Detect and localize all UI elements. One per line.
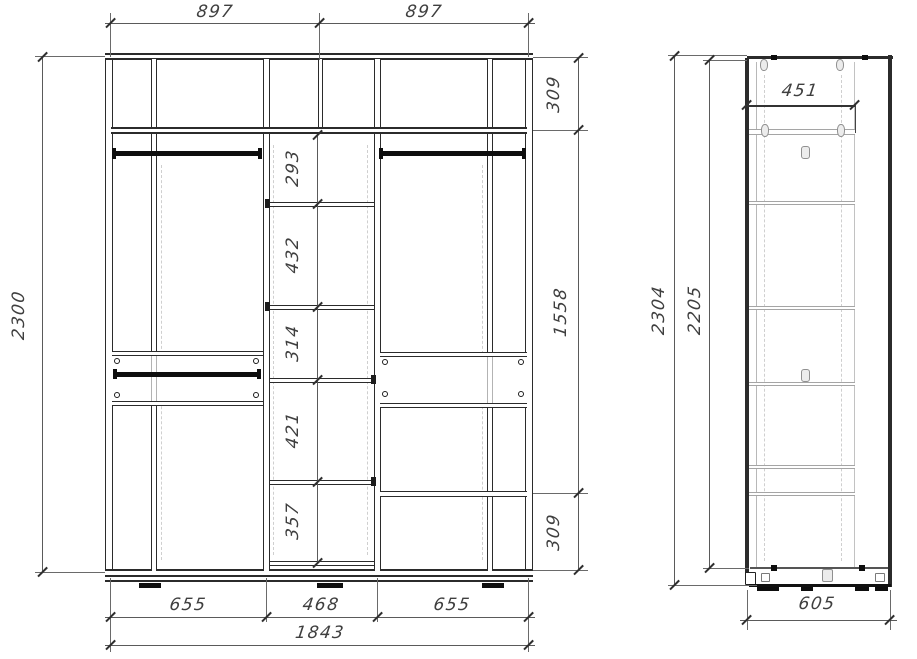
cam-lock-fitting bbox=[761, 124, 769, 137]
corner-fitting bbox=[518, 359, 524, 365]
dimension-line bbox=[747, 105, 856, 107]
middle-shelf bbox=[270, 480, 374, 485]
cam-lock-fitting bbox=[760, 59, 768, 71]
rod-bracket bbox=[522, 148, 526, 159]
side-foot bbox=[757, 587, 779, 591]
technical-drawing-canvas: 897 897 2300 309 1558 309 293 432 314 42… bbox=[0, 0, 917, 659]
side-shelf bbox=[749, 382, 855, 386]
front-plinth-edge bbox=[105, 580, 533, 582]
extension-line bbox=[533, 130, 588, 131]
rod-bracket bbox=[112, 148, 116, 159]
middle-shelf bbox=[270, 561, 374, 566]
hanging-rod-left bbox=[114, 151, 262, 156]
left-band-bottom-shelf bbox=[112, 401, 263, 406]
rod-bracket bbox=[257, 369, 261, 379]
bottom-corner-fitting bbox=[875, 573, 885, 582]
corner-fitting bbox=[382, 391, 388, 397]
cam-lock-fitting bbox=[836, 59, 844, 71]
right-band-fill bbox=[380, 357, 527, 403]
front-foot bbox=[482, 583, 504, 588]
dimension-line bbox=[317, 135, 318, 563]
dim-side-depth: 605 bbox=[786, 594, 849, 614]
dim-front-door-width-left: 897 bbox=[184, 2, 247, 22]
shelf-support bbox=[265, 302, 270, 311]
extension-line bbox=[35, 572, 105, 573]
side-shelf bbox=[749, 465, 855, 469]
extension-line bbox=[855, 105, 856, 133]
corner-fitting bbox=[253, 392, 259, 398]
bottom-fitting bbox=[771, 565, 777, 571]
corner-fitting bbox=[253, 358, 259, 364]
side-shelf bbox=[749, 201, 855, 205]
dimension-line bbox=[740, 620, 897, 621]
right-band-bottom-shelf bbox=[380, 403, 527, 408]
rod-cross-section bbox=[801, 146, 810, 159]
divider-behind-band bbox=[487, 357, 493, 403]
dim-section-width-center: 468 bbox=[290, 595, 353, 615]
dim-side-inner-depth: 451 bbox=[769, 81, 832, 101]
shelf-pin-holes bbox=[764, 75, 765, 561]
rod-bracket bbox=[379, 148, 383, 159]
left-band-fill bbox=[112, 356, 263, 401]
front-divider-left-middle bbox=[263, 59, 270, 571]
hanging-rod-right bbox=[381, 151, 526, 156]
side-shelf bbox=[749, 492, 855, 496]
extension-line bbox=[668, 55, 747, 56]
side-shelf bbox=[749, 306, 855, 310]
bottom-corner-fitting bbox=[761, 573, 770, 582]
side-top-panel bbox=[747, 56, 893, 59]
dim-shelf-gap-2: 432 bbox=[261, 239, 325, 272]
side-top-fitting bbox=[862, 55, 868, 60]
dimension-line bbox=[105, 645, 535, 646]
cam-lock-fitting bbox=[837, 124, 845, 137]
front-bottom-panel bbox=[105, 569, 533, 577]
side-door-front-edge bbox=[745, 58, 749, 573]
extension-line bbox=[890, 590, 891, 630]
front-foot bbox=[317, 583, 343, 588]
side-back-panel bbox=[888, 55, 892, 587]
shelf-support bbox=[371, 477, 376, 486]
corner-fitting bbox=[518, 391, 524, 397]
rod-bracket bbox=[113, 369, 117, 379]
shelf-support bbox=[371, 375, 376, 384]
side-foot bbox=[801, 587, 813, 591]
extension-line bbox=[533, 493, 588, 494]
middle-shelf bbox=[270, 378, 374, 383]
dim-shelf-gap-4: 421 bbox=[261, 414, 325, 447]
front-foot bbox=[139, 583, 161, 588]
shelf-pin-holes bbox=[841, 75, 842, 561]
dim-section-width-right: 655 bbox=[421, 595, 484, 615]
corner-fitting bbox=[114, 392, 120, 398]
dim-section-width-left: 655 bbox=[157, 595, 220, 615]
side-foot bbox=[875, 587, 888, 591]
bottom-fitting-gray bbox=[822, 569, 833, 582]
dim-front-total-height: 2300 bbox=[0, 296, 59, 333]
shelf-support bbox=[265, 199, 270, 208]
corner-fitting bbox=[114, 358, 120, 364]
left-band-top-shelf bbox=[112, 351, 263, 356]
extension-line bbox=[533, 570, 588, 571]
middle-shelf bbox=[270, 305, 374, 310]
corner-fitting bbox=[382, 359, 388, 365]
bottom-fitting bbox=[859, 565, 865, 571]
hanging-rod-left-mid bbox=[115, 372, 261, 377]
front-divider-left-inner bbox=[151, 59, 157, 571]
side-top-fitting bbox=[771, 55, 777, 60]
extension-line bbox=[747, 590, 748, 630]
dim-shelf-gap-3: 314 bbox=[261, 327, 325, 360]
side-foot bbox=[855, 587, 869, 591]
dim-shelf-gap-5: 357 bbox=[261, 505, 325, 538]
right-lower-shelf bbox=[380, 491, 527, 497]
middle-shelf bbox=[270, 202, 374, 207]
front-divider-top-center bbox=[318, 59, 323, 130]
dim-front-total-width: 1843 bbox=[282, 623, 359, 643]
right-band-top-shelf bbox=[380, 352, 527, 357]
divider-behind-band bbox=[151, 356, 157, 401]
dim-front-door-width-right: 897 bbox=[393, 2, 456, 22]
extension-line bbox=[35, 56, 105, 57]
dimension-line bbox=[105, 617, 535, 618]
dim-shelf-gap-1: 293 bbox=[261, 152, 325, 185]
rod-cross-section bbox=[801, 369, 810, 382]
extension-line bbox=[668, 585, 757, 586]
